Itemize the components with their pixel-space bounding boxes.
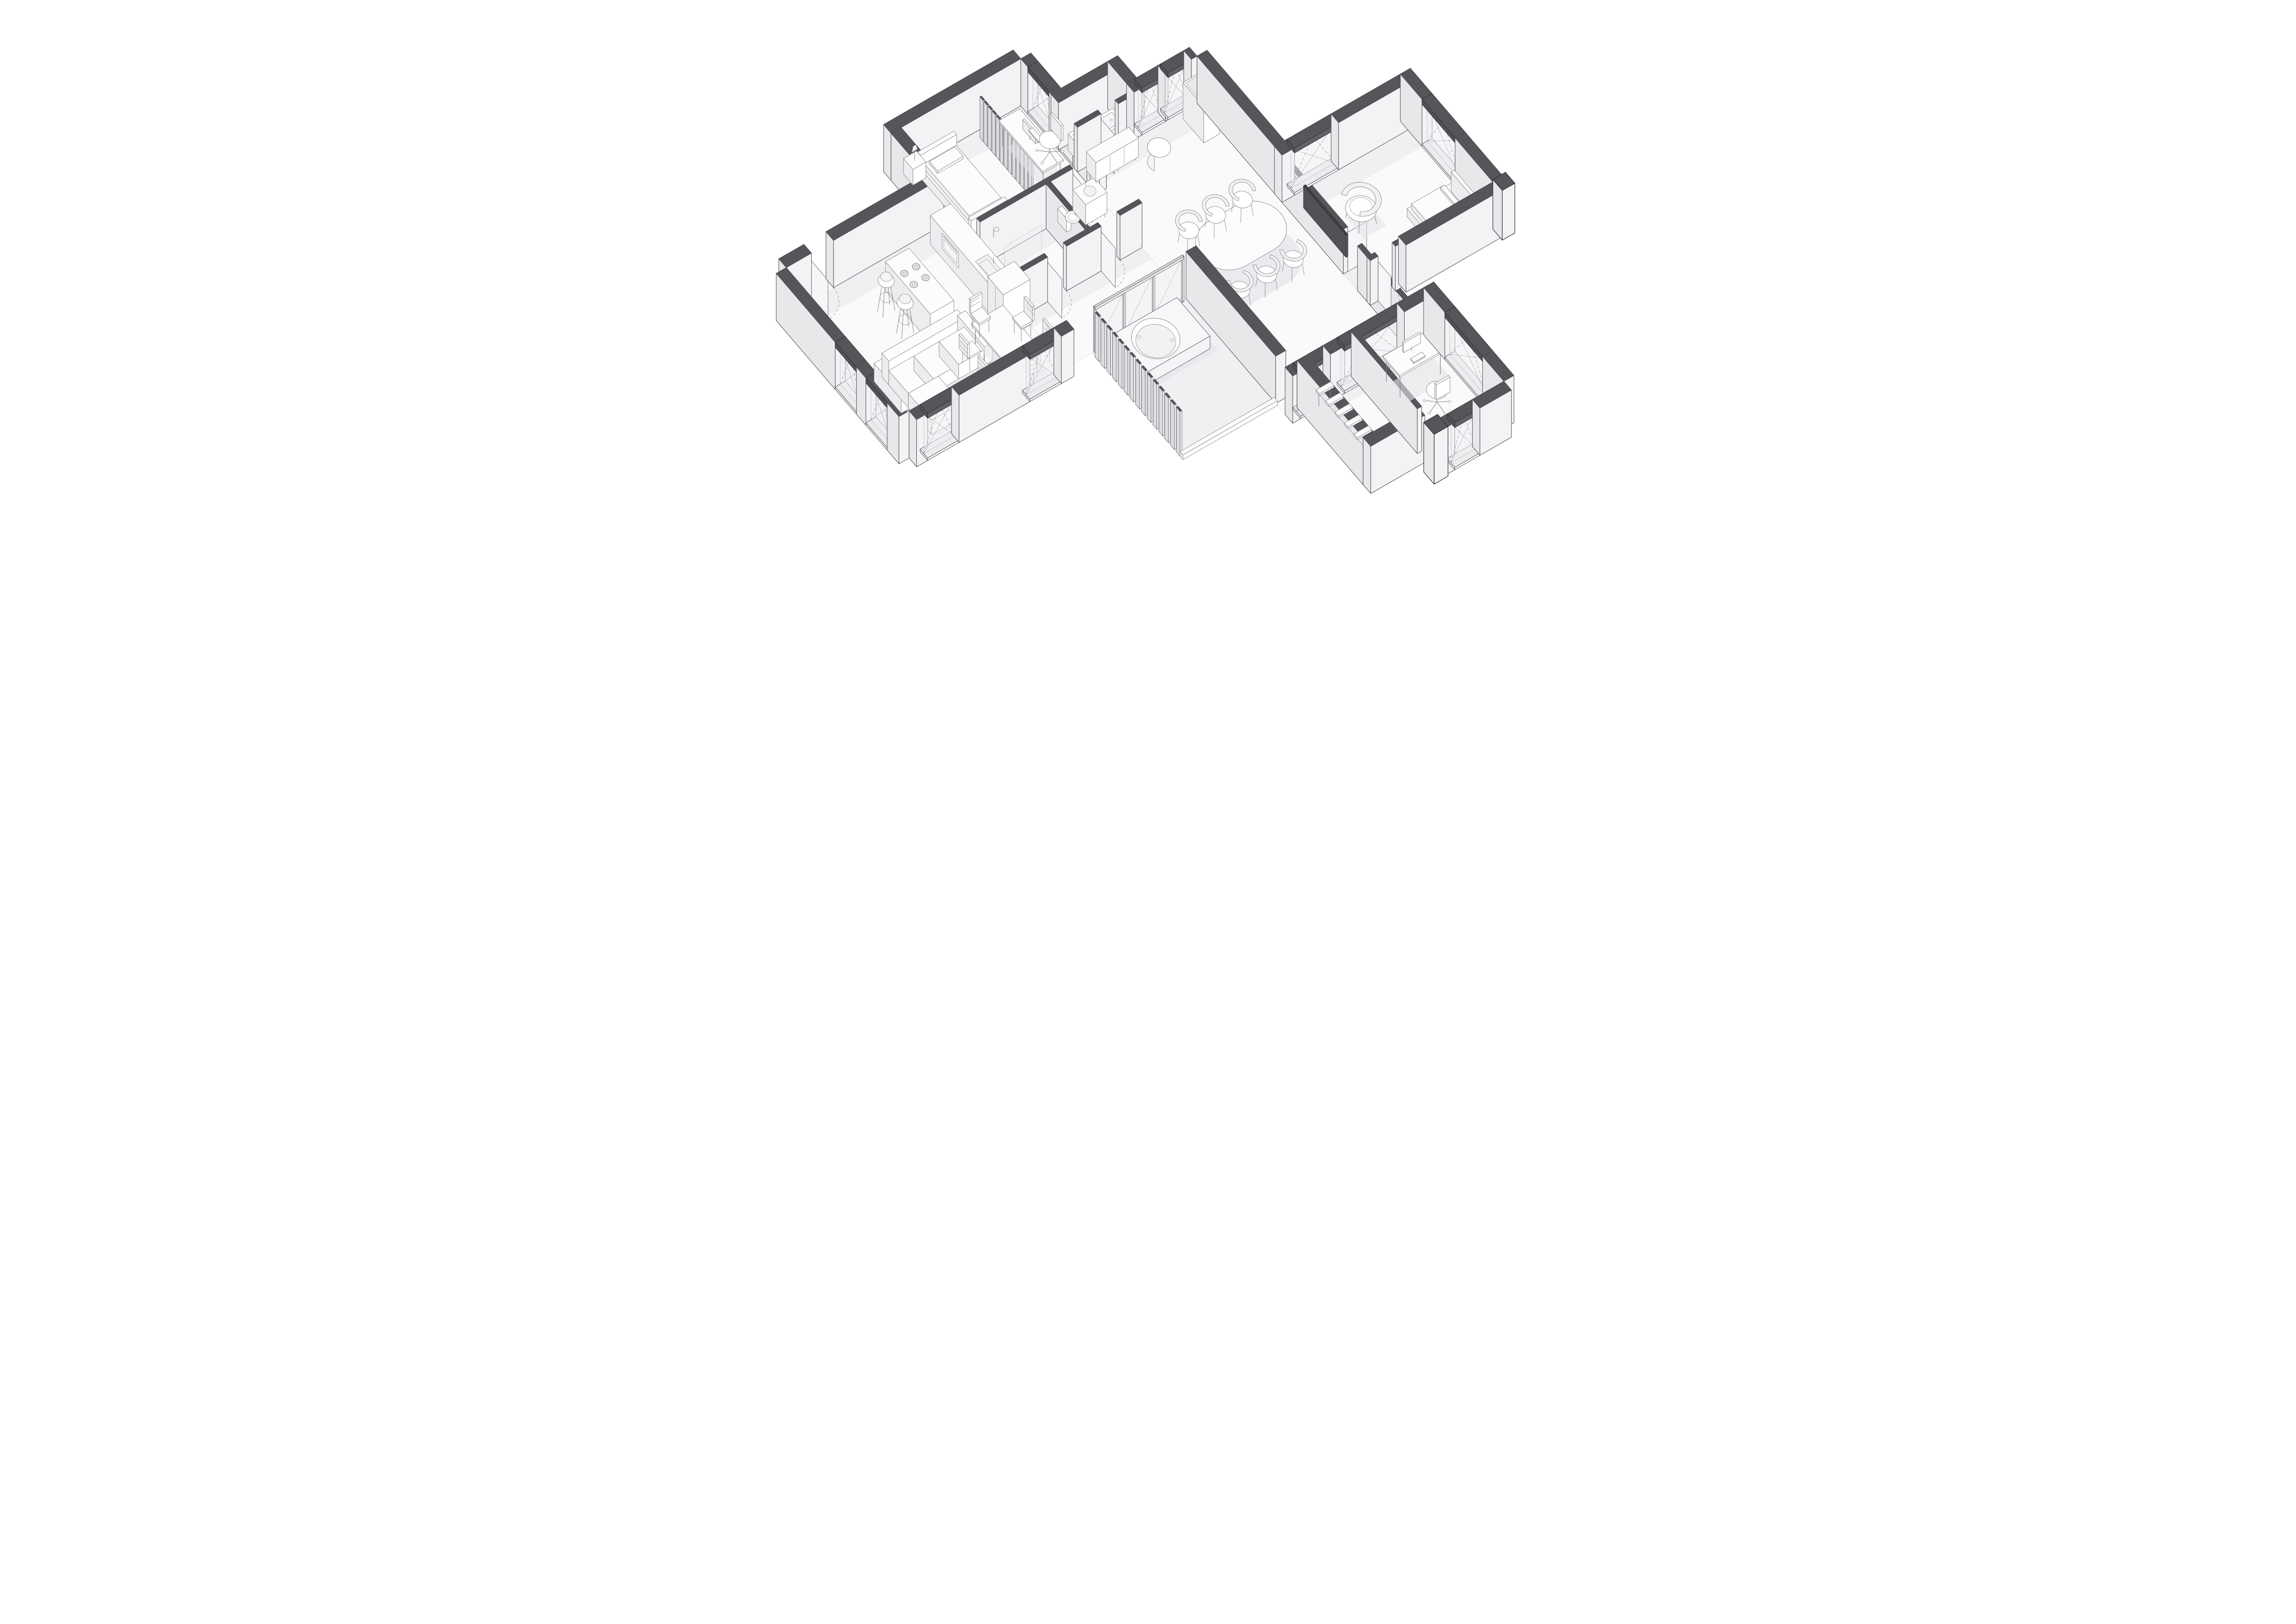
corner-pillar — [1493, 172, 1515, 240]
axonometric-floor-plan — [742, 0, 1554, 574]
corner-pillar — [1424, 414, 1448, 484]
document-page — [742, 0, 1554, 574]
